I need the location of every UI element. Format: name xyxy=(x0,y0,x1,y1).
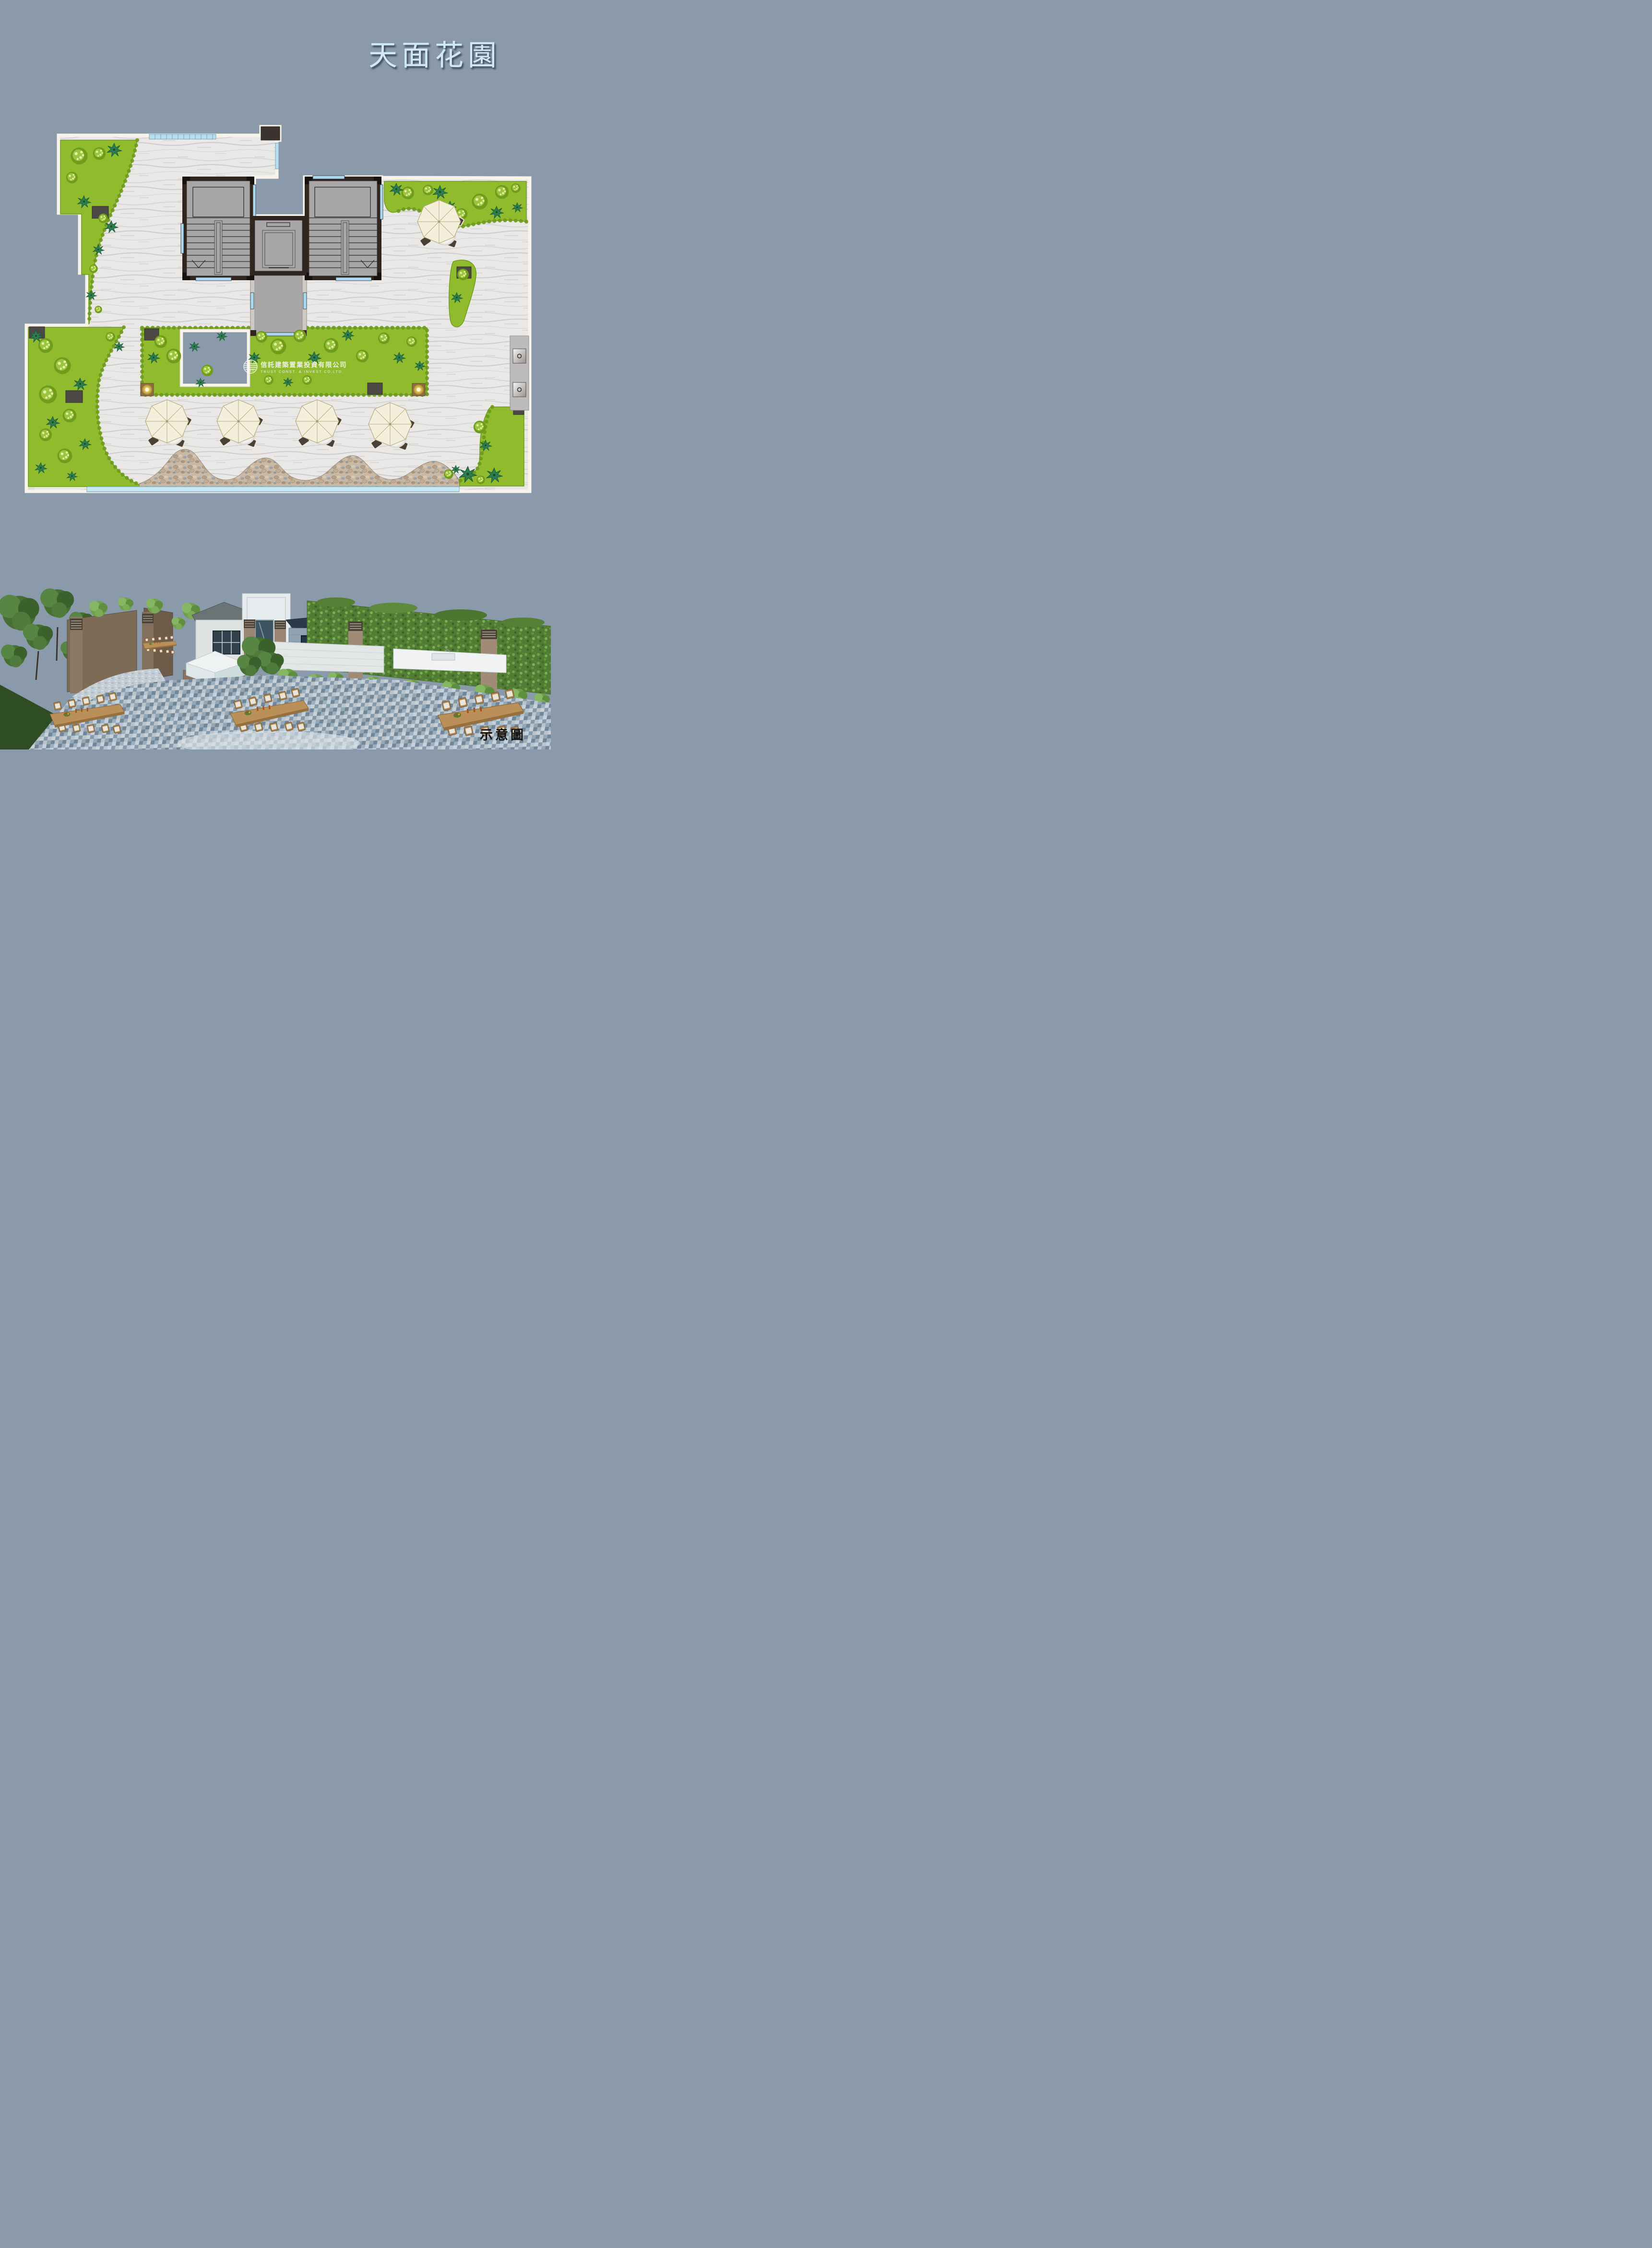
watermark-company-en: TRUST CONST. & INVEST CO.LTD. xyxy=(261,369,347,374)
photo-white-wall xyxy=(269,642,384,673)
glass-railing-top xyxy=(149,134,216,139)
logo-text: A.T.T. xyxy=(247,369,254,373)
watermark-company-cn: 信託建築置業投資有限公司 xyxy=(261,359,347,369)
page-title: 天面花園 xyxy=(368,41,501,70)
vent-block xyxy=(368,383,382,394)
page-canvas: 示意圖 天面花園 A.T.T. 信託建築置業投資有限公司 TRUST CONST… xyxy=(0,0,551,749)
company-logo-icon: A.T.T. xyxy=(243,359,258,374)
stairwell-right xyxy=(305,176,383,281)
dining-table-set-4 xyxy=(143,636,177,654)
stairwell-left xyxy=(181,177,256,281)
garden-lamp-left xyxy=(141,383,154,396)
glass-railing-side xyxy=(275,143,279,169)
bbq-counter xyxy=(510,336,529,410)
elevator-lobby xyxy=(250,275,307,336)
elevator-core xyxy=(250,216,307,275)
garden-lamp-right xyxy=(412,383,425,396)
vent-block xyxy=(66,391,83,403)
site-plan-canvas: 示意圖 xyxy=(0,0,551,749)
glass-railing-bottom xyxy=(87,487,459,492)
roof-garden-plan xyxy=(26,127,530,492)
photo-caption: 示意圖 xyxy=(480,727,526,742)
vent-block xyxy=(261,127,280,140)
company-watermark: A.T.T. 信託建築置業投資有限公司 TRUST CONST. & INVES… xyxy=(243,359,347,374)
rendering-photo: 示意圖 xyxy=(0,588,551,749)
skylight-void xyxy=(180,329,250,387)
